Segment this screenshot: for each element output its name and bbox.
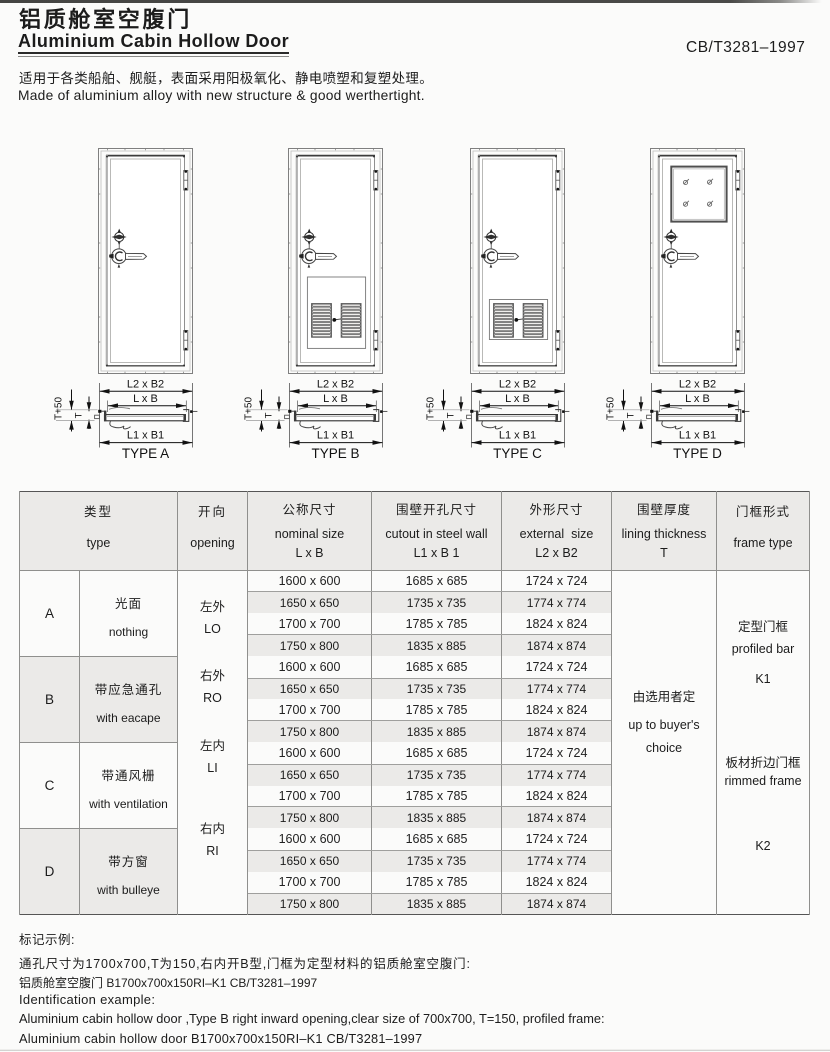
svg-text:L x B: L x B (685, 393, 710, 405)
svg-text:L1 x B1: L1 x B1 (499, 430, 536, 442)
svg-text:L2 x B2: L2 x B2 (317, 378, 354, 390)
svg-text:T: T (626, 412, 637, 418)
svg-text:L1 x B1: L1 x B1 (317, 430, 354, 442)
svg-text:L1 x B1: L1 x B1 (679, 430, 716, 442)
svg-text:L2 x B2: L2 x B2 (679, 378, 716, 390)
svg-text:L2 x B2: L2 x B2 (499, 378, 536, 390)
svg-text:L x B: L x B (323, 393, 348, 405)
svg-text:T+50: T+50 (426, 397, 437, 421)
svg-text:TYPE B: TYPE B (311, 446, 359, 461)
svg-text:L2 x B2: L2 x B2 (127, 378, 164, 390)
svg-text:TYPE C: TYPE C (493, 446, 542, 461)
svg-text:T+50: T+50 (244, 397, 255, 421)
svg-text:T+50: T+50 (54, 397, 65, 421)
svg-text:L1 x B1: L1 x B1 (127, 430, 164, 442)
svg-text:L x B: L x B (133, 393, 158, 405)
svg-text:TYPE A: TYPE A (122, 446, 169, 461)
svg-text:L x B: L x B (505, 393, 530, 405)
svg-text:TYPE D: TYPE D (673, 446, 722, 461)
svg-text:T: T (74, 412, 85, 418)
svg-text:T: T (446, 412, 457, 418)
svg-text:T: T (264, 412, 275, 418)
svg-text:T+50: T+50 (606, 397, 617, 421)
